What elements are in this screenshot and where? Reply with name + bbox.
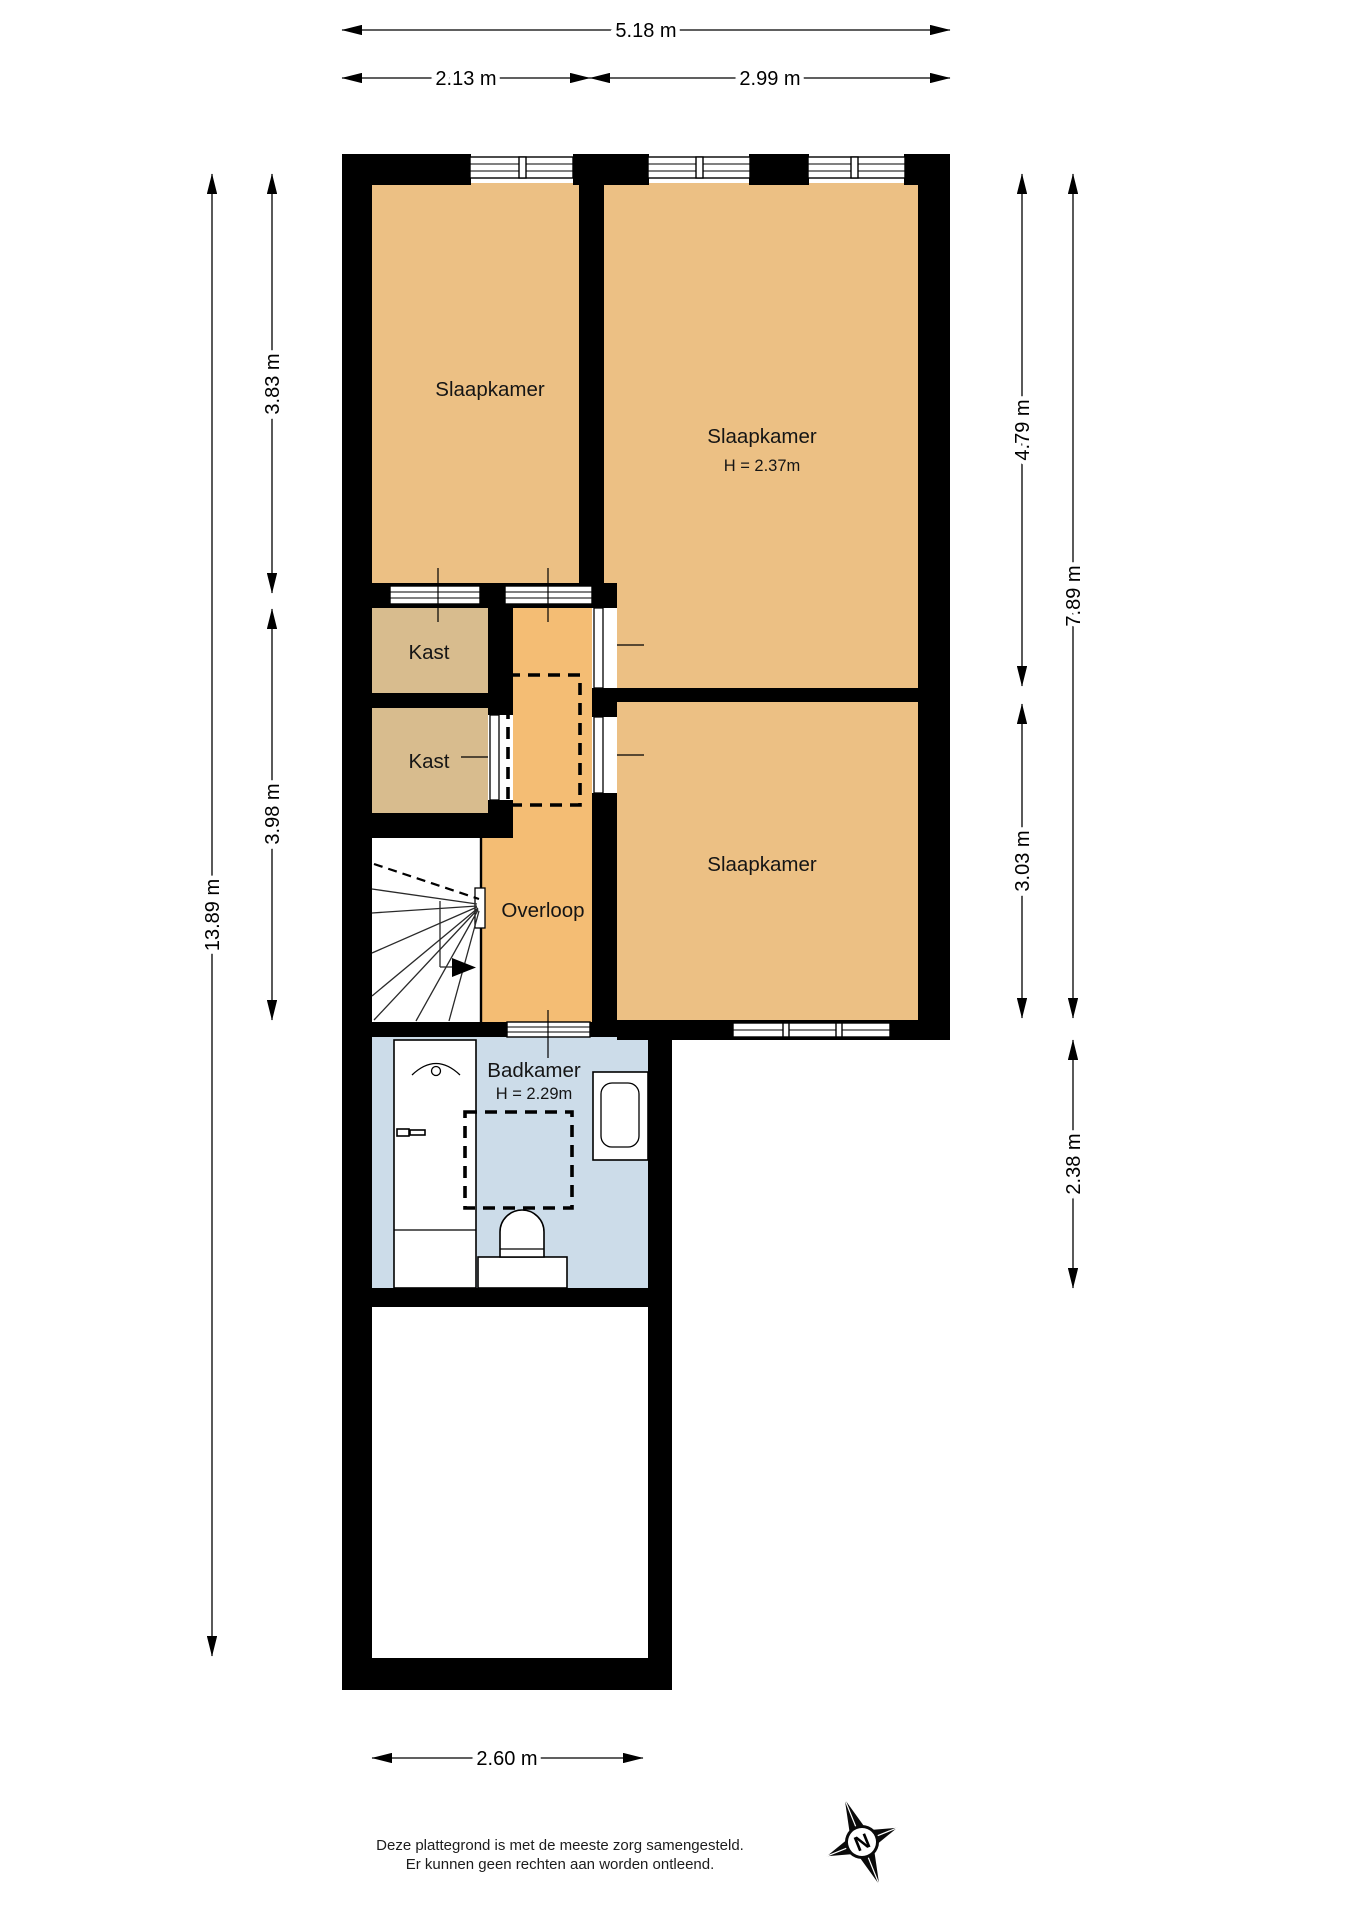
dimension-right-upper: 4.79 m xyxy=(1012,174,1034,686)
window-bedroom-middle xyxy=(733,1023,890,1037)
wall-bedroom-divider xyxy=(579,185,604,585)
svg-text:13.89 m: 13.89 m xyxy=(202,879,224,951)
window-top-right xyxy=(808,157,905,178)
label-bathroom: Badkamer xyxy=(487,1059,581,1082)
dimension-top-left: 2.13 m xyxy=(342,68,590,90)
svg-text:3.98 m: 3.98 m xyxy=(262,783,284,844)
wall-top-segment xyxy=(749,154,809,185)
dimension-top-right: 2.99 m xyxy=(590,68,950,90)
wall-closet-upper-right xyxy=(488,605,513,695)
wall-top-segment xyxy=(573,154,649,185)
dimension-right-bathroom: 2.38 m xyxy=(1063,1040,1085,1288)
wall-closet-divider xyxy=(342,693,513,708)
wall-right-upper xyxy=(918,154,950,1040)
svg-text:4.79 m: 4.79 m xyxy=(1012,399,1034,460)
dimension-bottom: 2.60 m xyxy=(372,1748,643,1770)
label-bedroom-top-right-height: H = 2.37m xyxy=(724,457,801,475)
svg-text:2.38 m: 2.38 m xyxy=(1063,1133,1085,1194)
wall-top-segment xyxy=(342,154,471,185)
wall-bathroom-right xyxy=(648,1020,672,1690)
wall-left xyxy=(342,154,372,1690)
label-closet-lower: Kast xyxy=(408,750,449,773)
label-landing: Overloop xyxy=(501,899,584,922)
svg-text:3.83 m: 3.83 m xyxy=(262,353,284,414)
window-top-middle xyxy=(648,157,750,178)
wall-bathroom-bottom xyxy=(372,1288,648,1307)
floorplan-canvas: Slaapkamer Slaapkamer H = 2.37m Slaapkam… xyxy=(0,0,1358,1920)
label-bedroom-middle: Slaapkamer xyxy=(707,853,817,876)
window-top-left xyxy=(470,157,573,178)
room-landing-lower xyxy=(481,836,513,1024)
bathtub-icon xyxy=(394,1040,476,1288)
wall-closet-lower-bottom xyxy=(342,813,513,838)
svg-text:2.60 m: 2.60 m xyxy=(476,1748,537,1770)
label-closet-upper: Kast xyxy=(408,641,449,664)
svg-text:3.03 m: 3.03 m xyxy=(1012,830,1034,891)
dimension-right-total: 7.89 m xyxy=(1063,174,1085,1018)
dimension-right-lower: 3.03 m xyxy=(1012,704,1034,1018)
compass-icon: N xyxy=(810,1785,915,1899)
svg-text:2.99 m: 2.99 m xyxy=(739,68,800,90)
sink-icon xyxy=(593,1072,648,1160)
stair-direction-arrow xyxy=(452,958,476,977)
footer-disclaimer-line1: Deze plattegrond is met de meeste zorg s… xyxy=(376,1837,744,1854)
svg-text:5.18 m: 5.18 m xyxy=(615,20,676,42)
dimension-left-total: 13.89 m xyxy=(202,174,224,1656)
dimension-left-upper: 3.83 m xyxy=(262,174,284,593)
stair-headroom-line xyxy=(374,864,479,899)
footer-disclaimer-line2: Er kunnen geen rechten aan worden ontlee… xyxy=(406,1856,715,1873)
label-bathroom-height: H = 2.29m xyxy=(496,1085,573,1103)
svg-text:2.13 m: 2.13 m xyxy=(435,68,496,90)
dimension-left-lower: 3.98 m xyxy=(262,609,284,1020)
room-landing xyxy=(511,605,594,1024)
wall-bedroom23-divider xyxy=(592,688,918,702)
wall-bottom xyxy=(342,1658,672,1690)
floorplan-page: Slaapkamer Slaapkamer H = 2.37m Slaapkam… xyxy=(0,0,1358,1920)
label-bedroom-top-left: Slaapkamer xyxy=(435,378,545,401)
svg-text:7.89 m: 7.89 m xyxy=(1063,565,1085,626)
dimension-top-total: 5.18 m xyxy=(342,20,950,42)
label-bedroom-top-right: Slaapkamer xyxy=(707,425,817,448)
staircase xyxy=(372,838,485,1022)
